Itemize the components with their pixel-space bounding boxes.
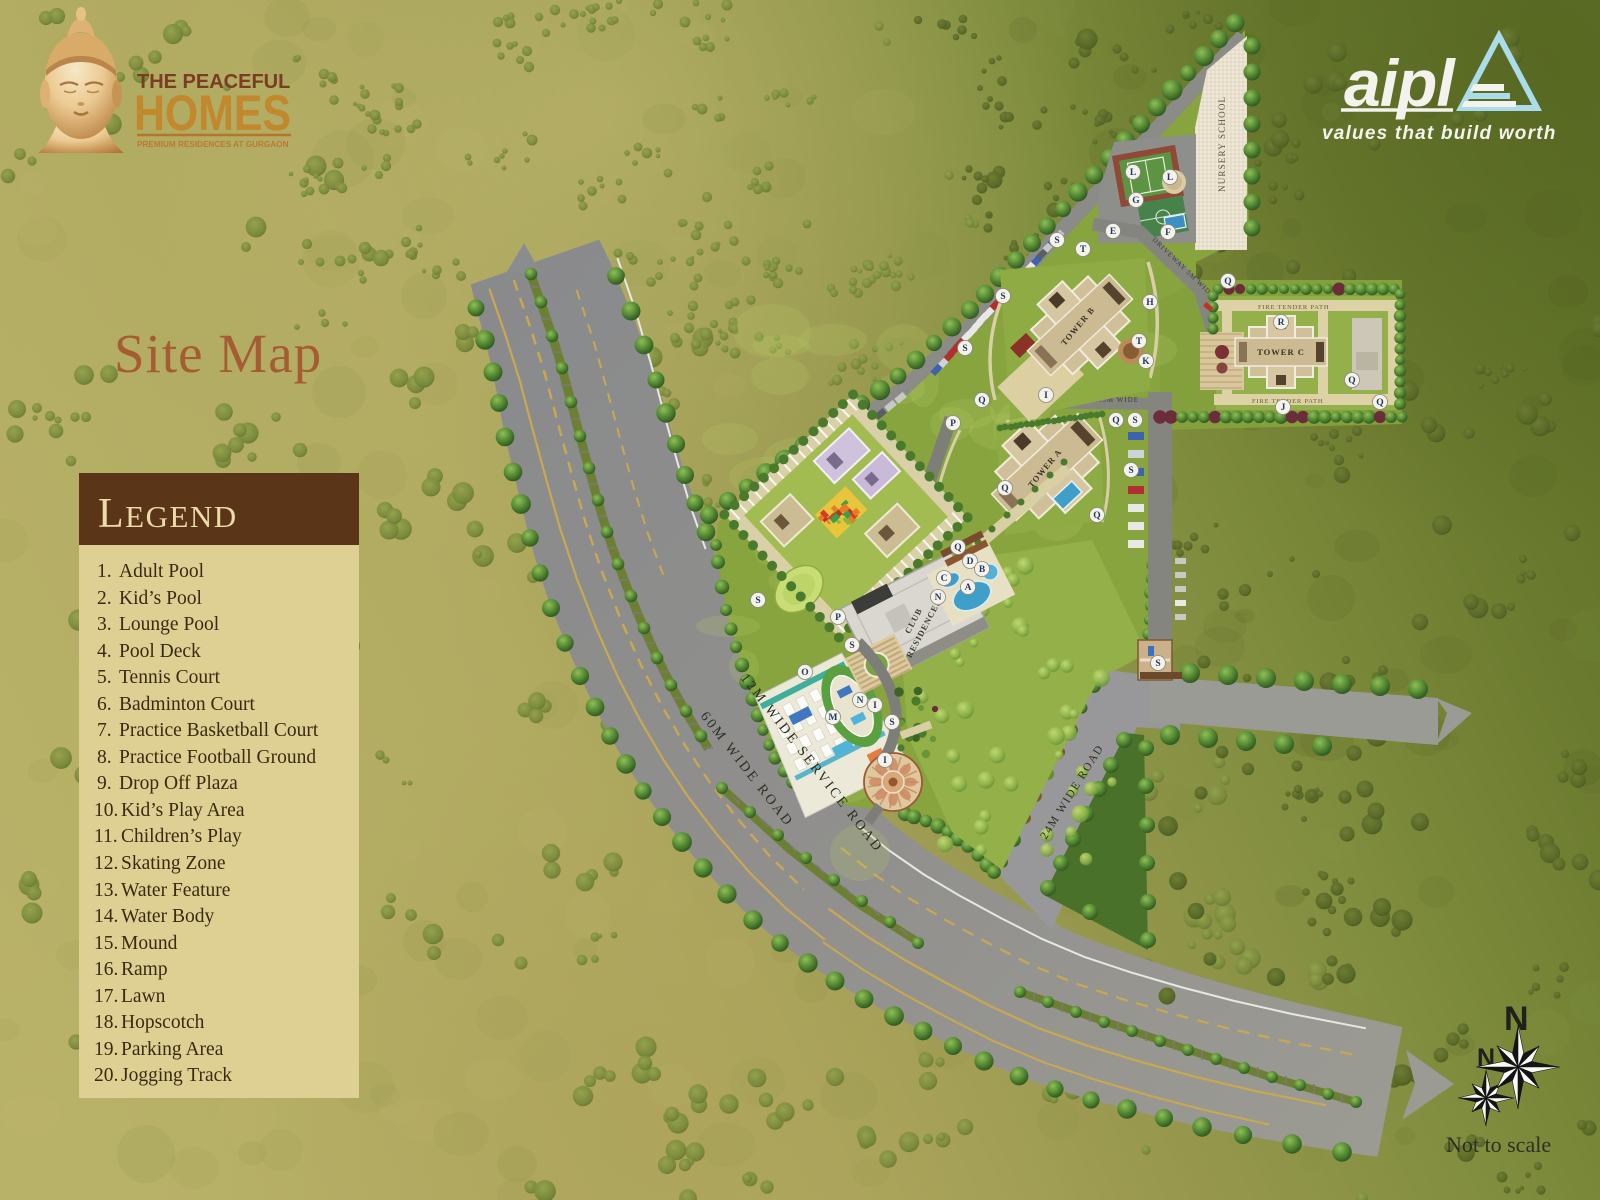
svg-text:R: R (1278, 318, 1285, 328)
svg-text:S: S (889, 718, 894, 728)
svg-text:Lawn: Lawn (121, 986, 166, 1007)
svg-text:PREMIUM RESIDENCES AT GURGAON: PREMIUM RESIDENCES AT GURGAON (137, 140, 289, 149)
svg-text:FIRE TENDER PATH: FIRE TENDER PATH (1258, 304, 1329, 311)
svg-text:16.: 16. (94, 959, 118, 980)
svg-text:12.: 12. (94, 853, 118, 874)
svg-text:Site Map: Site Map (114, 323, 322, 384)
svg-text:L: L (1130, 168, 1136, 178)
svg-text:Q: Q (1112, 416, 1119, 426)
svg-text:K: K (1142, 357, 1150, 367)
svg-text:N: N (935, 593, 942, 603)
svg-text:17.: 17. (94, 986, 118, 1007)
svg-text:15.: 15. (94, 933, 118, 954)
svg-text:G: G (1132, 196, 1140, 206)
svg-text:S: S (849, 641, 854, 651)
svg-text:P: P (835, 613, 841, 623)
svg-text:A: A (965, 583, 972, 593)
svg-text:S: S (1000, 292, 1005, 302)
svg-text:J: J (1281, 403, 1286, 413)
svg-text:I: I (1044, 391, 1048, 401)
svg-text:Adult Pool: Adult Pool (119, 561, 205, 582)
svg-text:7.: 7. (97, 720, 112, 741)
svg-text:Children’s Play: Children’s Play (121, 826, 242, 847)
svg-text:F: F (1165, 228, 1171, 238)
svg-text:8.: 8. (97, 747, 112, 768)
svg-text:Tennis Court: Tennis Court (119, 667, 221, 688)
svg-text:Q: Q (954, 543, 961, 553)
svg-text:Water Body: Water Body (121, 906, 214, 927)
svg-text:C: C (941, 574, 948, 584)
svg-text:Pool Deck: Pool Deck (119, 641, 201, 662)
svg-text:Lounge Pool: Lounge Pool (119, 614, 220, 635)
svg-text:20.: 20. (94, 1065, 118, 1086)
svg-text:L: L (1167, 173, 1173, 183)
svg-text:Mound: Mound (121, 933, 178, 954)
svg-text:N: N (857, 696, 864, 706)
svg-text:Q: Q (1093, 511, 1100, 521)
svg-text:18.: 18. (94, 1012, 118, 1033)
svg-text:TOWER C: TOWER C (1257, 347, 1305, 357)
svg-text:Q: Q (1224, 277, 1231, 287)
svg-text:5.: 5. (97, 667, 112, 688)
svg-text:P: P (950, 419, 956, 429)
svg-text:S: S (1155, 659, 1160, 669)
svg-text:M: M (829, 713, 838, 723)
svg-text:Water Feature: Water Feature (121, 880, 230, 901)
svg-text:Not to scale: Not to scale (1446, 1132, 1551, 1157)
svg-text:Ramp: Ramp (121, 959, 168, 980)
svg-text:O: O (801, 668, 808, 678)
svg-text:T: T (1080, 245, 1087, 255)
svg-text:Hopscotch: Hopscotch (121, 1012, 205, 1033)
svg-text:Q: Q (1001, 484, 1008, 494)
svg-text:I: I (873, 701, 877, 711)
svg-text:Kid’s Play Area: Kid’s Play Area (121, 800, 245, 821)
svg-text:T: T (1136, 337, 1143, 347)
svg-text:11.: 11. (94, 826, 118, 847)
svg-text:6.: 6. (97, 694, 112, 715)
svg-text:Practice Football Ground: Practice Football Ground (119, 747, 316, 768)
svg-text:S: S (1132, 416, 1137, 426)
svg-text:Kid’s Pool: Kid’s Pool (119, 588, 202, 609)
svg-text:4.: 4. (97, 641, 112, 662)
svg-text:S: S (962, 344, 967, 354)
svg-text:I: I (883, 756, 887, 766)
svg-text:S: S (755, 596, 760, 606)
svg-text:Drop Off Plaza: Drop Off Plaza (119, 773, 238, 794)
svg-text:9.: 9. (97, 773, 112, 794)
svg-text:values that build worth: values that build worth (1322, 123, 1557, 144)
svg-text:14.: 14. (94, 906, 118, 927)
svg-text:19.: 19. (94, 1039, 118, 1060)
svg-text:NURSERY SCHOOL: NURSERY SCHOOL (1217, 96, 1227, 192)
svg-text:1.: 1. (97, 561, 112, 582)
svg-text:H: H (1146, 298, 1154, 308)
svg-text:Badminton Court: Badminton Court (119, 694, 256, 715)
svg-text:Jogging Track: Jogging Track (121, 1065, 232, 1086)
svg-text:10.: 10. (94, 800, 118, 821)
svg-text:S: S (1054, 236, 1059, 246)
svg-text:N: N (1504, 1000, 1529, 1038)
svg-text:2.: 2. (97, 588, 112, 609)
svg-text:D: D (967, 557, 974, 567)
svg-text:B: B (979, 565, 986, 575)
svg-text:HOMES: HOMES (134, 85, 291, 141)
svg-text:3.: 3. (97, 614, 112, 635)
svg-text:Q: Q (1348, 376, 1355, 386)
svg-text:Practice Basketball Court: Practice Basketball Court (119, 720, 319, 741)
svg-text:E: E (1110, 227, 1116, 237)
svg-text:Q: Q (1376, 398, 1383, 408)
svg-text:Q: Q (978, 396, 985, 406)
svg-text:S: S (1128, 466, 1133, 476)
svg-text:13.: 13. (94, 880, 118, 901)
svg-text:Parking Area: Parking Area (121, 1039, 224, 1060)
svg-text:Skating Zone: Skating Zone (121, 853, 226, 874)
